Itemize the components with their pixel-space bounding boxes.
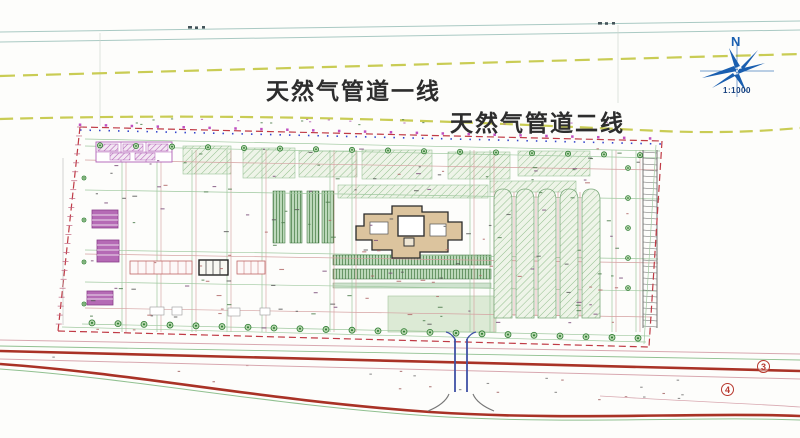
compass-scale-label: 1:1000 xyxy=(719,86,755,95)
survey-text-marks xyxy=(188,22,615,29)
cell-blocks xyxy=(130,260,270,316)
compass-north-label: N xyxy=(731,34,740,49)
road-corridor xyxy=(0,340,800,420)
pipeline1-label: 天然气管道一线 xyxy=(266,72,441,106)
site-plan-canvas xyxy=(0,0,800,438)
road-marker-3: 3 xyxy=(757,360,770,373)
site-plan-page: 天然气管道一线 天然气管道二线 N 1:1000 3 4 xyxy=(0,0,800,438)
purple-structures xyxy=(87,210,119,305)
drying-beds xyxy=(494,189,600,318)
pipeline2-label: 天然气管道二线 xyxy=(450,104,625,138)
road-marker-4: 4 xyxy=(721,383,734,396)
pipeline2-dashed-line xyxy=(0,117,800,132)
